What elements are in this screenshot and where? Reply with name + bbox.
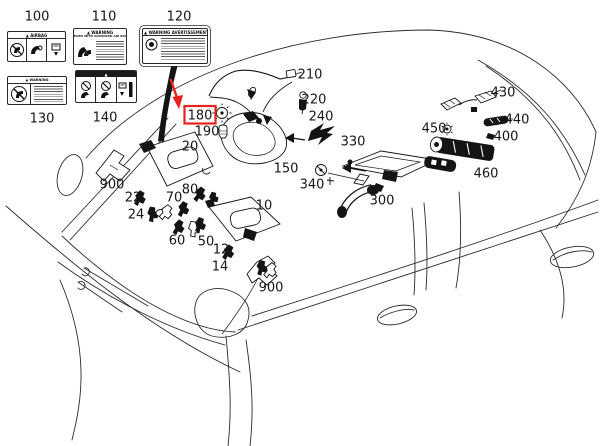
airbag-warning-icon <box>27 39 46 61</box>
label-120-text-block <box>159 36 207 63</box>
label-100-header: ▲ AIRBAG <box>8 32 65 39</box>
door-shut-line <box>456 192 461 288</box>
hood-edge <box>6 206 240 372</box>
rear-pillar-line <box>556 132 596 228</box>
manual-hand-bar-icon <box>117 77 136 102</box>
callout-20[interactable]: 20 <box>182 140 199 155</box>
callout-12[interactable]: 12 <box>213 243 230 258</box>
no-child-seat-icon-2 <box>96 77 116 102</box>
callout-150[interactable]: 150 <box>274 162 299 177</box>
callout-330[interactable]: 330 <box>341 135 366 150</box>
label-card-110: ▲ WARNING EVEN WITH ADVANCED AIR BAGS <box>73 28 127 65</box>
label-card-100: ▲ AIRBAG <box>7 31 66 62</box>
visor-pointer-arrow <box>158 62 178 142</box>
part-handle-bracket-330 <box>343 151 437 185</box>
callout-140[interactable]: 140 <box>93 111 118 126</box>
windshield-base <box>62 236 235 332</box>
callout-80[interactable]: 80 <box>182 183 199 198</box>
label-130-text-block <box>31 84 66 104</box>
part-clip-symbol-240 <box>308 123 335 145</box>
label-card-130: ▲ WARNING <box>7 76 67 105</box>
wiper-arm-2 <box>78 281 122 312</box>
fine-print-lines <box>161 38 205 61</box>
callout-110[interactable]: 110 <box>92 10 117 25</box>
label-card-120: ▲ WARNING AVERTISSEMENT ■ <box>142 28 208 64</box>
round-pictogram <box>143 36 159 63</box>
fender-crease-line <box>246 340 252 446</box>
callout-70[interactable]: 70 <box>166 191 183 206</box>
part-lens-cover-460 <box>423 155 457 172</box>
part-bracket-900-front <box>96 150 130 181</box>
callout-460[interactable]: 460 <box>474 167 499 182</box>
part-bolt-190 <box>219 125 227 138</box>
callout-14[interactable]: 14 <box>212 260 229 275</box>
callout-340[interactable]: 340 <box>300 178 325 193</box>
b-pillar-line <box>412 208 415 295</box>
callout-24[interactable]: 24 <box>128 208 145 223</box>
callout-900[interactable]: 900 <box>100 178 125 193</box>
child-seat-pictogram <box>74 39 94 64</box>
diagram-canvas: 1001101201301402102202401801901503403303… <box>0 0 600 446</box>
part-rear-dome-lamp-400 <box>429 133 495 161</box>
callout-300[interactable]: 300 <box>370 194 395 209</box>
label-110-text-block <box>94 39 126 64</box>
callout-220[interactable]: 220 <box>302 93 327 108</box>
callout-210[interactable]: 210 <box>298 68 323 83</box>
callout-130[interactable]: 130 <box>30 112 55 127</box>
callout-400[interactable]: 400 <box>494 130 519 145</box>
side-mirror-left <box>53 152 88 199</box>
side-mirror-right <box>195 289 249 338</box>
door-handle-front <box>375 302 418 329</box>
wiper-arm-1 <box>82 268 148 306</box>
door-handle-front-detail <box>380 309 414 318</box>
highlight-arrow <box>171 79 184 109</box>
callout-900[interactable]: 900 <box>259 281 284 296</box>
callout-22[interactable]: 22 <box>125 191 142 206</box>
label-120-header: ▲ WARNING AVERTISSEMENT ■ <box>143 29 207 36</box>
callout-450[interactable]: 450 <box>422 122 447 137</box>
no-child-seat-icon-1 <box>76 77 96 102</box>
cowl-line <box>58 262 225 345</box>
no-rear-child-seat-icon <box>8 39 27 61</box>
callout-190[interactable]: 190 <box>195 125 220 140</box>
part-sun-visor-20 <box>139 132 213 186</box>
rear-fender-line <box>540 230 564 318</box>
beltline <box>238 212 598 330</box>
callout-440[interactable]: 440 <box>505 113 530 128</box>
callout-120[interactable]: 120 <box>167 10 192 25</box>
b-pillar-inner-line <box>424 203 427 290</box>
a-pillar-base-line <box>226 336 230 446</box>
highlight-arrow-head <box>173 95 184 109</box>
label-card-140: ▲ <box>75 70 137 103</box>
callout-60[interactable]: 60 <box>169 234 186 249</box>
door-handle-rear <box>548 243 595 271</box>
fine-print-lines <box>34 86 63 102</box>
front-fender-line <box>60 280 81 440</box>
callout-240[interactable]: 240 <box>309 110 334 125</box>
no-child-seat-icon <box>8 84 31 104</box>
door-handle-rear-detail <box>553 251 592 260</box>
callout-180[interactable]: 180 <box>188 109 213 124</box>
callout-10[interactable]: 10 <box>256 199 273 214</box>
callout-100[interactable]: 100 <box>25 10 50 25</box>
fine-print-lines <box>96 41 124 62</box>
callout-430[interactable]: 430 <box>491 86 516 101</box>
manual-hand-icon <box>47 39 65 61</box>
parts-diagram-stage: 1001101201301402102202401801901503403303… <box>0 0 600 446</box>
